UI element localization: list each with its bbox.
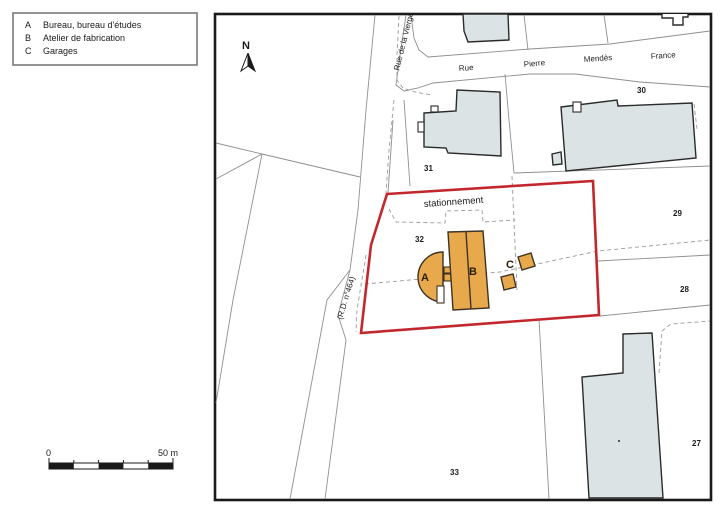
building-c-garage-1 [518, 253, 535, 270]
parcel-number-28: 28 [680, 285, 689, 294]
legend-label-a: Bureau, bureau d'études [43, 20, 142, 30]
street-label-rue: Rue [459, 63, 475, 73]
building-label-b: B [469, 266, 477, 278]
scale-segment [49, 463, 74, 469]
scale-start-label: 0 [46, 448, 51, 458]
legend-label-c: Garages [43, 46, 78, 56]
building-label-c: C [506, 259, 514, 271]
scale-bar: 0 50 m [46, 448, 178, 469]
street-label-france: France [651, 50, 677, 61]
legend-key-b: B [25, 33, 31, 43]
street-label-pierre: Pierre [523, 58, 546, 69]
parcel-number-27: 27 [692, 439, 701, 448]
building-30-annex [552, 152, 562, 165]
scale-ticks [49, 458, 173, 463]
building-north-of-street [463, 14, 509, 42]
parcel-number-32: 32 [415, 235, 424, 244]
building-31-annex [418, 122, 424, 132]
scale-end-label: 50 m [158, 448, 178, 458]
scale-segment [148, 463, 173, 469]
north-label: N [242, 40, 250, 52]
building-30-roof-detail [573, 102, 581, 112]
parcel-number-30: 30 [637, 86, 646, 95]
legend-key-c: C [25, 46, 32, 56]
parcel-number-31: 31 [424, 164, 433, 173]
site-plan-figure: Rue de la Vierge Rue Pierre Mendès Franc… [0, 0, 728, 515]
legend: A Bureau, bureau d'études B Atelier de f… [13, 13, 197, 65]
scale-segment [99, 463, 124, 469]
building-a-notch [437, 286, 444, 303]
building-label-a: A [421, 272, 429, 284]
legend-key-a: A [25, 20, 31, 30]
building-c-garage-2 [501, 274, 516, 290]
building-point-mark [618, 440, 620, 442]
parcel-number-29: 29 [673, 209, 682, 218]
parcel-number-33: 33 [450, 468, 459, 477]
legend-label-b: Atelier de fabrication [43, 33, 125, 43]
building-31-roof-detail [431, 106, 438, 112]
